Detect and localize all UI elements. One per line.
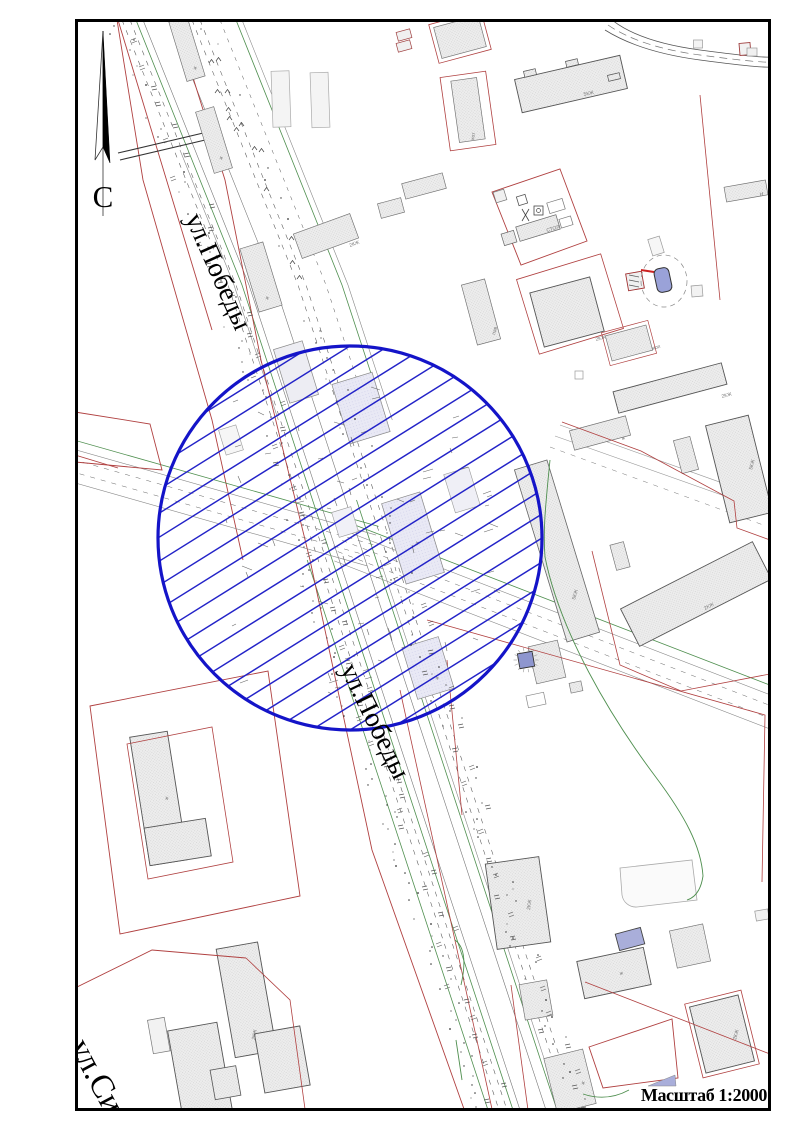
svg-text:Масштаб 1:2000: Масштаб 1:2000 [641, 1085, 768, 1105]
svg-text:С: С [93, 179, 114, 214]
